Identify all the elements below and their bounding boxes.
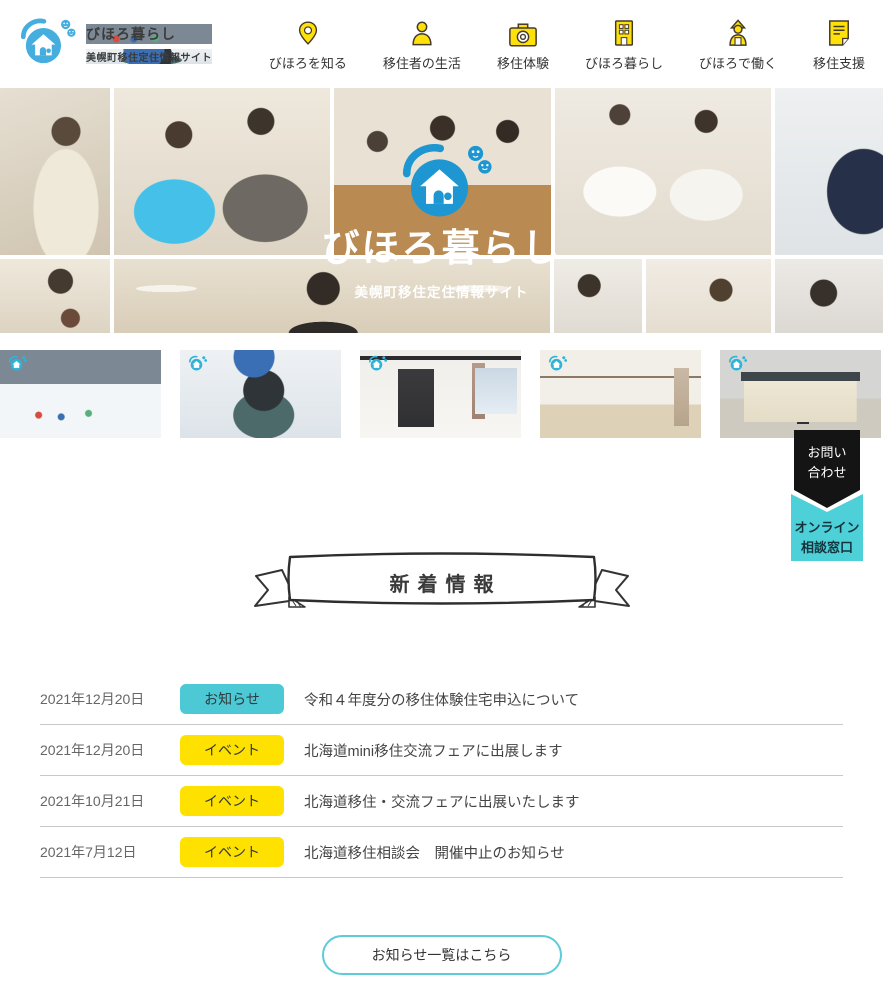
thumbnail-ski-slope[interactable] [0,350,161,438]
hero-photo-father-baby [0,259,110,333]
hero-photo-person-desk [775,88,883,255]
news-link[interactable]: 北海道移住・交流フェアに出展いたします [304,791,580,812]
news-list-button[interactable]: お知らせ一覧はこちら [322,935,562,975]
watermark-logo-icon [366,355,388,377]
thumbnail-room-interior[interactable] [360,350,521,438]
nav-item-migrant-life[interactable]: 移住者の生活 [383,16,461,72]
news-row[interactable]: 2021年7月12日 イベント 北海道移住相談会 開催中止のお知らせ [40,827,843,878]
news-date: 2021年7月12日 [40,842,180,862]
camera-icon [508,16,538,48]
brand-logo-icon [14,14,76,75]
site-logo[interactable]: びほろ暮らし 美幌町移住定住情報サイト [14,14,212,75]
hero-photo-woman-kitchen [646,259,771,333]
news-date: 2021年10月21日 [40,791,180,811]
thumbnail-house-exterior[interactable] [720,350,881,438]
news-section: 新着情報 2021年12月20日 お知らせ 令和４年度分の移住体験住宅申込につい… [0,548,883,975]
site-header: びほろ暮らし 美幌町移住定住情報サイト びほろを知る 移住者の生活 移住体験 [0,0,883,88]
news-row[interactable]: 2021年10月21日 イベント 北海道移住・交流フェアに出展いたします [40,776,843,827]
news-row[interactable]: 2021年12月20日 イベント 北海道mini移住交流フェアに出展します [40,725,843,776]
nav-item-migration-support[interactable]: 移住支援 [813,16,865,72]
news-heading: 新着情報 [252,568,632,597]
site-title: びほろ暮らし [86,24,212,44]
hero-photo-man-glasses [114,259,550,333]
watermark-logo-icon [186,355,208,377]
person-icon [408,16,436,48]
hero-photo-couple-white [555,88,771,255]
nav-item-work-in-bihoro[interactable]: びほろで働く [699,16,777,72]
contact-tags: お問い 合わせ オンライン 相談窓口 [791,430,863,561]
news-link[interactable]: 北海道mini移住交流フェアに出展します [304,740,563,761]
news-date: 2021年12月20日 [40,689,180,709]
hero-photo-man-smiling [775,259,883,333]
hero-photo-family-table [334,88,551,255]
watermark-logo-icon [546,355,568,377]
map-pin-icon [295,16,321,48]
nav-item-bihoro-living[interactable]: びほろ暮らし [585,16,663,72]
watermark-logo-icon [726,355,748,377]
worker-icon [724,16,752,48]
news-list: 2021年12月20日 お知らせ 令和４年度分の移住体験住宅申込について 202… [40,674,843,878]
news-date: 2021年12月20日 [40,740,180,760]
news-link[interactable]: 令和４年度分の移住体験住宅申込について [304,689,579,710]
watermark-logo-icon [6,355,28,377]
news-badge: イベント [180,786,284,816]
thumbnail-tatami-room[interactable] [540,350,701,438]
site-subtitle: 美幌町移住定住情報サイト [86,49,212,64]
news-badge: イベント [180,735,284,765]
news-heading-ribbon: 新着情報 [252,548,632,614]
hero-carousel[interactable]: びほろ暮らし 美幌町移住定住情報サイト [0,88,883,333]
news-link[interactable]: 北海道移住相談会 開催中止のお知らせ [304,842,565,863]
news-row[interactable]: 2021年12月20日 お知らせ 令和４年度分の移住体験住宅申込について [40,674,843,725]
gallery-thumbnails [0,350,883,438]
hero-photo-man-child [554,259,642,333]
inquiry-tag[interactable]: お問い 合わせ [794,430,860,508]
hero-photo-couple-jackets [114,88,330,255]
news-badge: お知らせ [180,684,284,714]
news-badge: イベント [180,837,284,867]
nav-item-migration-experience[interactable]: 移住体験 [497,16,549,72]
hero-photo-woman-sweater [0,88,110,255]
thumbnail-snowshoe[interactable] [180,350,341,438]
building-icon [612,16,636,48]
document-icon [827,16,851,48]
main-nav: びほろを知る 移住者の生活 移住体験 びほろ暮らし びほろで働く [269,16,869,72]
nav-item-know-bihoro[interactable]: びほろを知る [269,16,347,72]
